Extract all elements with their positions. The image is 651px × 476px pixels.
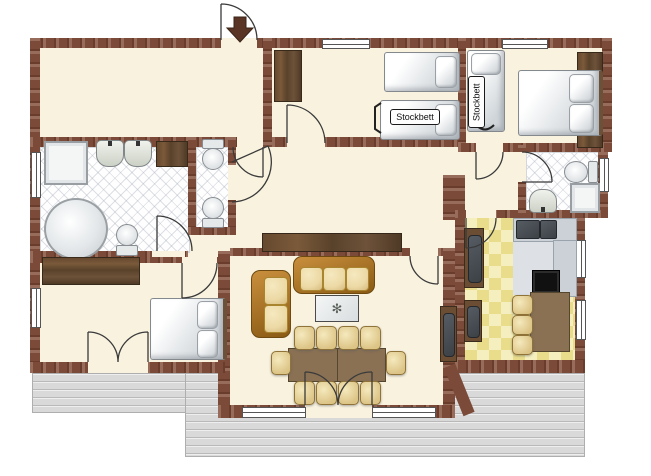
heater-front bbox=[467, 306, 480, 338]
window-kitchen-1 bbox=[576, 240, 586, 278]
sofa-cushion bbox=[346, 267, 369, 291]
pillow bbox=[569, 74, 594, 103]
kitchen-heater bbox=[464, 300, 482, 342]
toilet-tank bbox=[588, 161, 598, 183]
sofa-cushion bbox=[300, 267, 323, 291]
tap-icon bbox=[541, 207, 545, 212]
tv-front bbox=[443, 313, 455, 357]
window-kitchen-2 bbox=[576, 300, 586, 340]
toilet-bowl bbox=[202, 148, 224, 170]
opening-bedroom2-door bbox=[476, 143, 503, 152]
opening-kids-door bbox=[287, 137, 325, 147]
single-bed-1 bbox=[384, 52, 460, 92]
dining-chair bbox=[338, 381, 359, 405]
opening-hall-door bbox=[237, 137, 263, 147]
opening-bath-door bbox=[152, 251, 185, 257]
opening-bedroom3-door bbox=[182, 257, 217, 263]
bunk-bed-label-vertical: Stockbett bbox=[468, 76, 485, 128]
bathroom-toilet bbox=[114, 224, 140, 256]
bathroom-sink-2 bbox=[124, 140, 152, 167]
kitchen-cooktop bbox=[532, 270, 560, 294]
kitchen-table bbox=[530, 292, 570, 352]
bunk-bed-label-text: Stockbett bbox=[396, 112, 434, 122]
wall-right-upper bbox=[602, 38, 612, 152]
plant-icon: ✻ bbox=[332, 301, 343, 317]
window-bathroom bbox=[31, 152, 41, 198]
toilet-bowl bbox=[116, 224, 138, 246]
dining-chair bbox=[294, 326, 315, 350]
window-kidsroom bbox=[322, 39, 370, 49]
wall-hallway-divider bbox=[263, 38, 272, 147]
coffee-table: ✻ bbox=[315, 295, 359, 322]
double-bed-bedroom3 bbox=[150, 298, 227, 360]
sofa-three-seat bbox=[293, 256, 375, 294]
opening-living-door bbox=[410, 248, 438, 256]
kitchen-stove-unit bbox=[540, 220, 557, 239]
shower bbox=[44, 141, 88, 185]
bathroom-cabinet bbox=[156, 141, 188, 167]
pillow bbox=[197, 330, 218, 358]
terrace-left bbox=[32, 373, 187, 413]
ensuite-sink bbox=[529, 189, 557, 213]
bunk-bed-label-text: Stockbett bbox=[472, 83, 482, 121]
bedroom3-wardrobe bbox=[42, 257, 140, 285]
opening-wc-door bbox=[228, 165, 236, 200]
ensuite-shower bbox=[570, 183, 600, 213]
sofa-cushion bbox=[264, 277, 288, 305]
dining-chair bbox=[360, 381, 381, 405]
dining-chair bbox=[316, 326, 337, 350]
sideboard bbox=[262, 233, 402, 252]
wc-toilet-2 bbox=[200, 197, 226, 227]
opening-kitchen-door bbox=[466, 210, 496, 218]
wall-kitchen-bottom bbox=[455, 360, 585, 373]
dining-chair bbox=[316, 381, 337, 405]
bunk-bed-label-horizontal: Stockbett bbox=[390, 109, 440, 125]
window-bedroom2 bbox=[502, 39, 548, 49]
dining-chair bbox=[271, 351, 291, 375]
window-living-left bbox=[242, 407, 306, 418]
pillow bbox=[197, 301, 218, 329]
opening-entrance bbox=[221, 38, 257, 48]
tap-icon bbox=[136, 141, 140, 146]
window-ensuite bbox=[599, 158, 609, 192]
double-bed-bedroom2 bbox=[518, 70, 603, 136]
dining-chair bbox=[360, 326, 381, 350]
sofa-cushion bbox=[264, 305, 288, 333]
opening-french-bedroom bbox=[88, 362, 148, 373]
kidsroom-closet bbox=[274, 50, 302, 102]
kitchen-appliance-column bbox=[464, 228, 484, 288]
wall-bath-wc-divider bbox=[188, 137, 196, 235]
entrance-door bbox=[221, 4, 257, 40]
tv-unit bbox=[440, 306, 457, 362]
kitchen-chair bbox=[512, 295, 533, 315]
tap-icon bbox=[108, 141, 112, 146]
opening-french-living bbox=[305, 405, 372, 418]
toilet-bowl bbox=[564, 161, 588, 183]
dining-chair bbox=[294, 381, 315, 405]
toilet-tank bbox=[202, 218, 224, 228]
sofa-cushion bbox=[323, 267, 346, 291]
appliance-front bbox=[468, 235, 482, 283]
window-bedroom3 bbox=[31, 288, 41, 328]
bathtub bbox=[44, 198, 108, 260]
bathroom-sink-1 bbox=[96, 140, 124, 167]
sofa-two-seat bbox=[251, 270, 291, 338]
toilet-tank bbox=[116, 245, 138, 256]
kitchen-sink-unit bbox=[516, 220, 540, 239]
floor-plan-canvas: ✻ bbox=[0, 0, 651, 476]
pillow bbox=[435, 56, 457, 88]
pillow bbox=[471, 53, 501, 75]
dining-chair bbox=[338, 326, 359, 350]
pillow bbox=[569, 104, 594, 133]
wall-wc-bottom bbox=[188, 227, 236, 235]
wall-hall-stub bbox=[443, 175, 455, 220]
window-living-right bbox=[372, 407, 436, 418]
opening-ensuite-door bbox=[518, 152, 526, 182]
wc-toilet-1 bbox=[200, 139, 226, 169]
dining-table bbox=[288, 348, 386, 382]
kitchen-chair bbox=[512, 335, 533, 355]
kitchen-chair bbox=[512, 315, 533, 335]
ensuite-toilet bbox=[564, 159, 596, 183]
dining-chair bbox=[386, 351, 406, 375]
toilet-bowl bbox=[202, 197, 224, 219]
